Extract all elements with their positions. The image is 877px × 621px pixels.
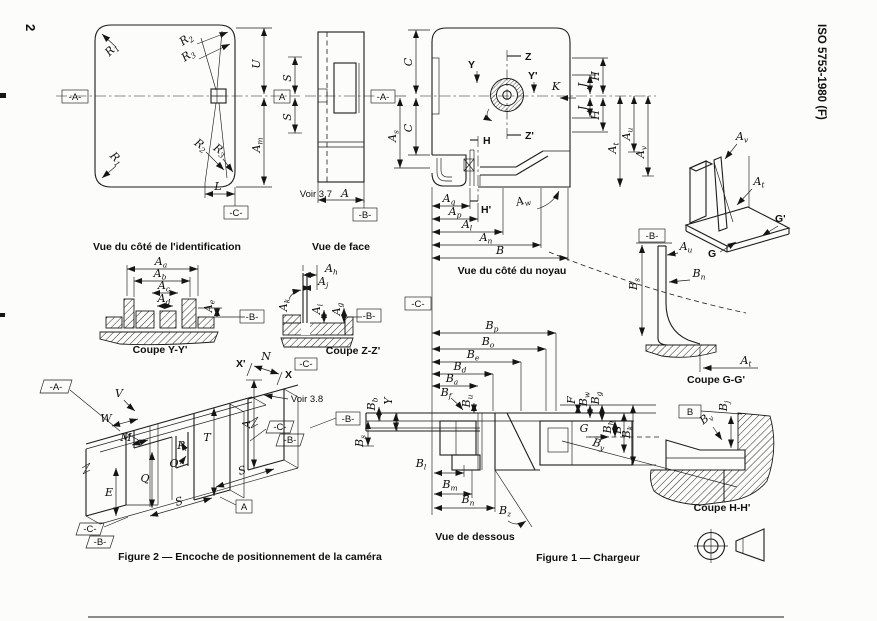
dim-label-h: H [589, 110, 602, 121]
caption-identification: Vue du côté de l'identification [93, 241, 241, 253]
svg-text:-B-: -B- [94, 537, 107, 548]
section-marker-x: X [285, 369, 292, 381]
dim-label-ap: Ap [448, 205, 462, 220]
dim-label-r2: R2 [176, 30, 196, 50]
svg-text:-B-: -B- [284, 435, 297, 446]
datum-flag-b: -B- [86, 536, 114, 548]
dim-label-s: S [281, 113, 294, 121]
datum-box-a-ref: -A- [371, 90, 395, 103]
dim-label-al: Al [461, 218, 473, 233]
svg-text:-A-: -A- [69, 92, 82, 103]
section-yy: Aa Ab Ac Ad Ae -B- Coupe Y-Y' [100, 255, 264, 356]
datum-box-c-ref: -C- [405, 297, 431, 310]
dim-label-bf: Bf [440, 386, 453, 401]
dim-label-ae: Ae [202, 299, 217, 313]
dim-label-by: By [590, 436, 607, 453]
dim-label-av: Av [735, 130, 749, 145]
dim-label-am: Am [250, 137, 265, 153]
dim-label-c: C [402, 57, 415, 66]
datum-box-b-ref: -B- [240, 310, 264, 323]
dim-label-ag: Ag [330, 302, 345, 316]
dim-label-ah: Ah [324, 262, 338, 277]
dim-label-aj: Aj [317, 275, 329, 290]
dim-label-a: A [340, 187, 349, 200]
dim-label-p: P [176, 439, 185, 452]
section-marker-x-prime: X' [236, 358, 246, 370]
dim-label-au: Au [620, 127, 635, 141]
dim-label-au: Au [679, 240, 693, 255]
svg-text:-B-: -B- [246, 312, 259, 323]
datum-flag-c: -C- [76, 523, 104, 535]
datum-box-a: A [274, 90, 290, 103]
dim-label-s: S [174, 494, 185, 509]
view-identification: R1 R1 R2 R3 R2 R3 L -A- -C- U Am Vue du … [56, 25, 300, 253]
dim-label-av: Av [634, 145, 649, 159]
scan-artifact [0, 313, 5, 317]
dim-label-bs: Bs [627, 278, 642, 291]
dim-label-c: C [402, 123, 415, 132]
section-marker-y: Y [468, 59, 475, 71]
dim-label-t: T [203, 431, 212, 444]
section-hh: B Bj Bv Coupe H-H' [650, 400, 773, 514]
svg-text:-B-: -B- [359, 210, 372, 221]
dim-label-ai: Ai [310, 303, 325, 315]
dim-label-y: Y [382, 396, 395, 405]
datum-box-c-ref: -C- [224, 206, 248, 219]
dim-label-w: W [100, 412, 113, 425]
section-marker-z-prime: Z' [525, 130, 534, 142]
svg-text:-C-: -C- [229, 208, 242, 219]
dim-label-bp: Bp [485, 319, 499, 334]
standard-reference: ISO 5753-1980 (F) [815, 24, 827, 120]
scan-artifact [0, 93, 6, 98]
svg-text:-B-: -B- [646, 231, 659, 242]
svg-text:A: A [279, 92, 286, 103]
dim-label-l: L [213, 180, 221, 193]
dim-label-o: O [169, 457, 178, 470]
note-voir-3-8: Voir 3.8 [291, 394, 323, 405]
dim-label-as: As [386, 130, 401, 143]
dim-label-j: J [576, 105, 589, 112]
dim-label-bu: Bu [460, 394, 475, 408]
datum-box-b-ref: -B- [639, 229, 665, 242]
section-marker-g: G [708, 248, 716, 260]
svg-text:-A-: -A- [50, 382, 63, 393]
dim-label-bn: Bn [461, 493, 475, 508]
section-marker-h: H [483, 135, 491, 147]
section-marker-z: Z [525, 51, 532, 63]
caption-coupe-yy: Coupe Y-Y' [133, 344, 188, 356]
caption-coupe-gg: Coupe G-G' [687, 374, 745, 386]
dim-label-bn: Bn [692, 267, 706, 282]
dim-label-bz: Bz [498, 504, 511, 519]
dim-label-r2: R2 [190, 135, 210, 155]
dim-label-g: G [580, 422, 589, 435]
section-zz: Ah Aj Ak Ai Ag -B- Coupe Z-Z' [277, 262, 381, 357]
svg-text:-C-: -C- [273, 422, 286, 433]
dim-label-bb: Bb [365, 397, 380, 411]
section-gg: -B- Bs Au Bn At Coupe G-G' [627, 229, 758, 386]
dim-label-bj: Bj [717, 400, 732, 412]
svg-text:B: B [687, 407, 693, 418]
dim-label-u: U [250, 59, 263, 69]
dim-label-s: S [281, 74, 294, 82]
svg-text:-C-: -C- [83, 524, 96, 535]
dim-label-r1: R1 [105, 149, 125, 169]
dim-label-k: K [551, 80, 561, 93]
dim-label-h: H [589, 71, 602, 82]
section-marker-g-prime: G' [775, 213, 786, 225]
datum-box-b-ref: -B- [310, 412, 360, 428]
dim-label-an: An [479, 231, 493, 246]
datum-box-a: A [220, 497, 252, 513]
dim-label-q: Q [140, 472, 149, 485]
svg-text:-A-: -A- [377, 92, 390, 103]
section-marker-y-prime: Y' [528, 70, 538, 82]
caption-coupe-zz: Coupe Z-Z' [326, 345, 380, 357]
page-number: 2 [23, 24, 38, 31]
caption-figure1: Figure 1 — Chargeur [536, 552, 640, 564]
svg-text:A: A [241, 502, 248, 513]
caption-figure2: Figure 2 — Encoche de positionnement de … [118, 551, 382, 563]
svg-text:-B-: -B- [342, 414, 355, 425]
note-voir-3-7: Voir 3.7 [300, 189, 332, 200]
svg-text:-B-: -B- [363, 311, 376, 322]
dim-label-bm: Bm [441, 478, 457, 493]
datum-box-a-ref: -A- [62, 90, 88, 103]
datum-box-b-ref: -B- [353, 208, 377, 221]
standard-drawing-page: 2 ISO 5753-1980 (F) R1 R1 R2 R3 R2 R3 L … [0, 0, 877, 621]
caption-dessous: Vue de dessous [435, 531, 515, 543]
pedestal-isometric: Av At G' G [686, 130, 789, 260]
shared-datum-a: A S S [274, 57, 302, 133]
svg-text:-C-: -C- [411, 299, 424, 310]
dim-label-m: M [119, 431, 132, 444]
figure2-isometric: V W M P O Q E T A S S A X' N X -C- Voir … [40, 350, 382, 563]
dim-label-bo: Bo [481, 335, 495, 350]
dim-label-at: At [740, 354, 753, 369]
dim-label-e: E [104, 486, 113, 499]
dim-label-aw: Aw [514, 192, 533, 210]
dim-label-ad: Ad [157, 292, 171, 307]
datum-box-b-ref: -B- [357, 309, 381, 322]
section-marker-h-prime: H' [481, 204, 491, 216]
dim-label-r3: R3 [178, 46, 198, 66]
dim-label-v: V [115, 387, 124, 400]
dim-label-ak: Ak [277, 298, 292, 312]
dim-label-n: N [260, 350, 271, 363]
dim-label-r3: R3 [209, 140, 229, 160]
dim-label-be: Be [466, 348, 480, 363]
projection-symbol [694, 529, 764, 563]
caption-coupe-hh: Coupe H-H' [694, 502, 751, 514]
dim-label-s: S [237, 463, 248, 478]
caption-noyau: Vue du côté du noyau [458, 265, 567, 277]
datum-box-c-ref: -C- [295, 358, 317, 370]
datum-flag-c: -C- [266, 421, 294, 433]
dim-label-at: At [606, 142, 621, 155]
caption-face: Vue de face [312, 241, 370, 253]
dim-label-j: J [576, 82, 589, 89]
dim-label-b: B [495, 244, 504, 257]
dim-label-at: At [753, 175, 766, 190]
datum-flag-b: -B- [276, 434, 304, 446]
svg-text:-C-: -C- [299, 359, 312, 370]
dim-label-bl: Bl [415, 457, 427, 472]
